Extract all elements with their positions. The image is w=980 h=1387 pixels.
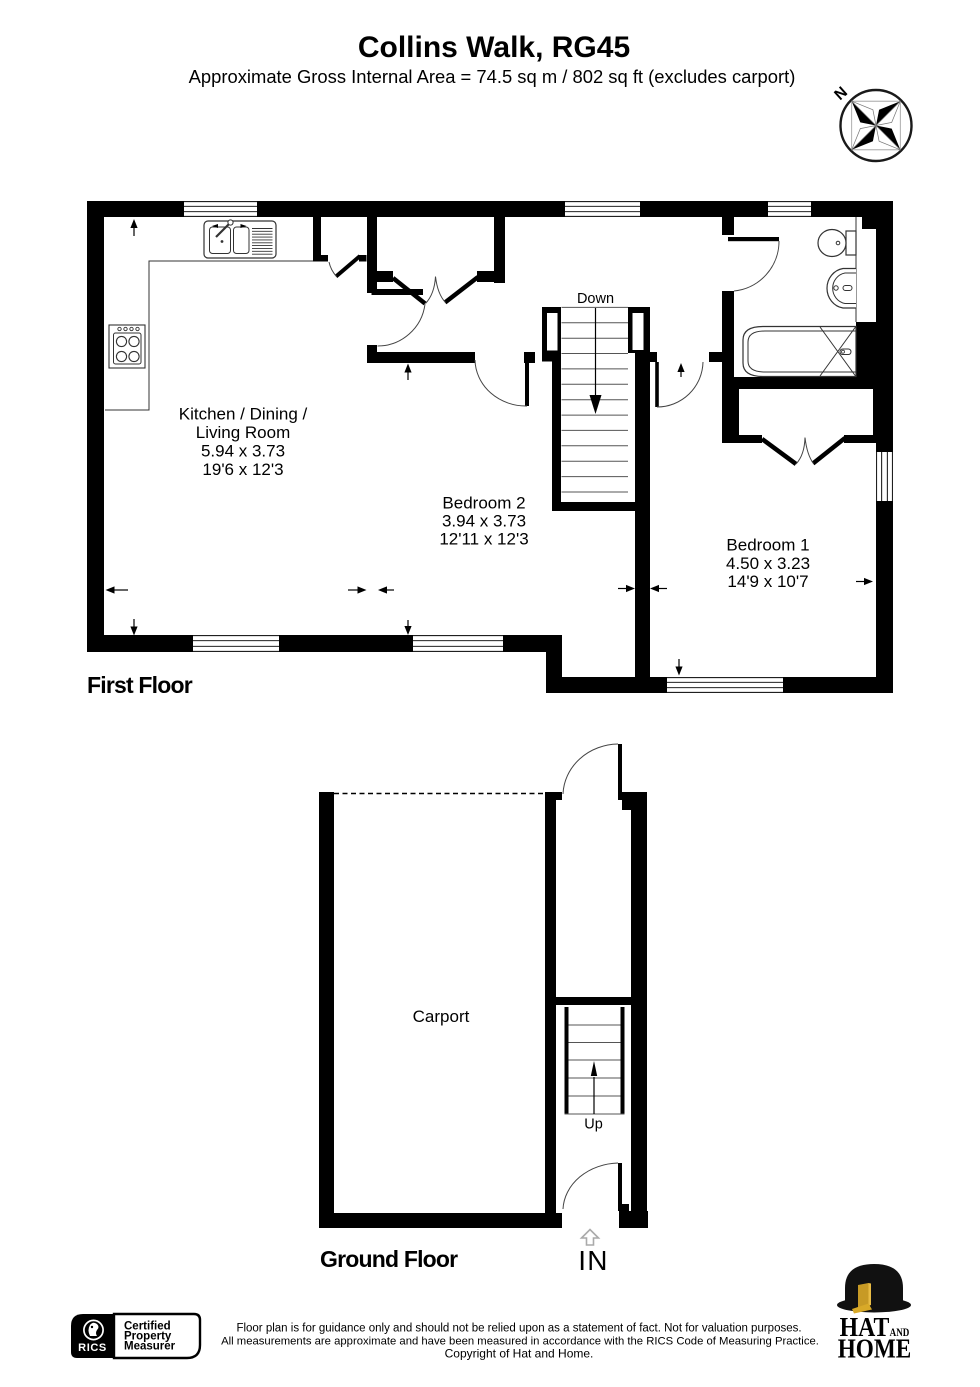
svg-text:Up: Up xyxy=(584,1117,603,1133)
svg-text:IN: IN xyxy=(578,1245,608,1276)
svg-text:Collins Walk, RG45: Collins Walk, RG45 xyxy=(358,31,630,64)
svg-text:Down: Down xyxy=(577,291,614,307)
svg-text:Kitchen / Dining /: Kitchen / Dining / xyxy=(179,405,308,424)
svg-text:N: N xyxy=(831,84,851,104)
svg-text:RICS: RICS xyxy=(78,1342,107,1354)
svg-text:First Floor: First Floor xyxy=(87,672,193,698)
svg-text:19'6 x 12'3: 19'6 x 12'3 xyxy=(202,460,283,479)
svg-text:Measurer: Measurer xyxy=(124,1341,176,1353)
svg-text:Living Room: Living Room xyxy=(196,423,291,442)
svg-text:5.94 x 3.73: 5.94 x 3.73 xyxy=(201,442,285,461)
svg-text:12'11 x 12'3: 12'11 x 12'3 xyxy=(439,530,528,549)
svg-text:Bedroom 2: Bedroom 2 xyxy=(442,493,525,512)
svg-text:Bedroom 1: Bedroom 1 xyxy=(726,535,809,554)
svg-text:Approximate Gross Internal Are: Approximate Gross Internal Area = 74.5 s… xyxy=(189,66,796,87)
svg-text:Ground Floor: Ground Floor xyxy=(320,1246,458,1272)
svg-text:Copyright of Hat and Home.: Copyright of Hat and Home. xyxy=(445,1347,594,1361)
svg-text:3.94 x 3.73: 3.94 x 3.73 xyxy=(442,512,526,531)
svg-text:Carport: Carport xyxy=(413,1007,470,1026)
svg-text:Floor plan is for guidance onl: Floor plan is for guidance only and shou… xyxy=(236,1323,801,1335)
svg-text:4.50 x 3.23: 4.50 x 3.23 xyxy=(726,554,810,573)
svg-text:HOME: HOME xyxy=(838,1335,912,1364)
svg-text:14'9 x 10'7: 14'9 x 10'7 xyxy=(727,572,808,591)
